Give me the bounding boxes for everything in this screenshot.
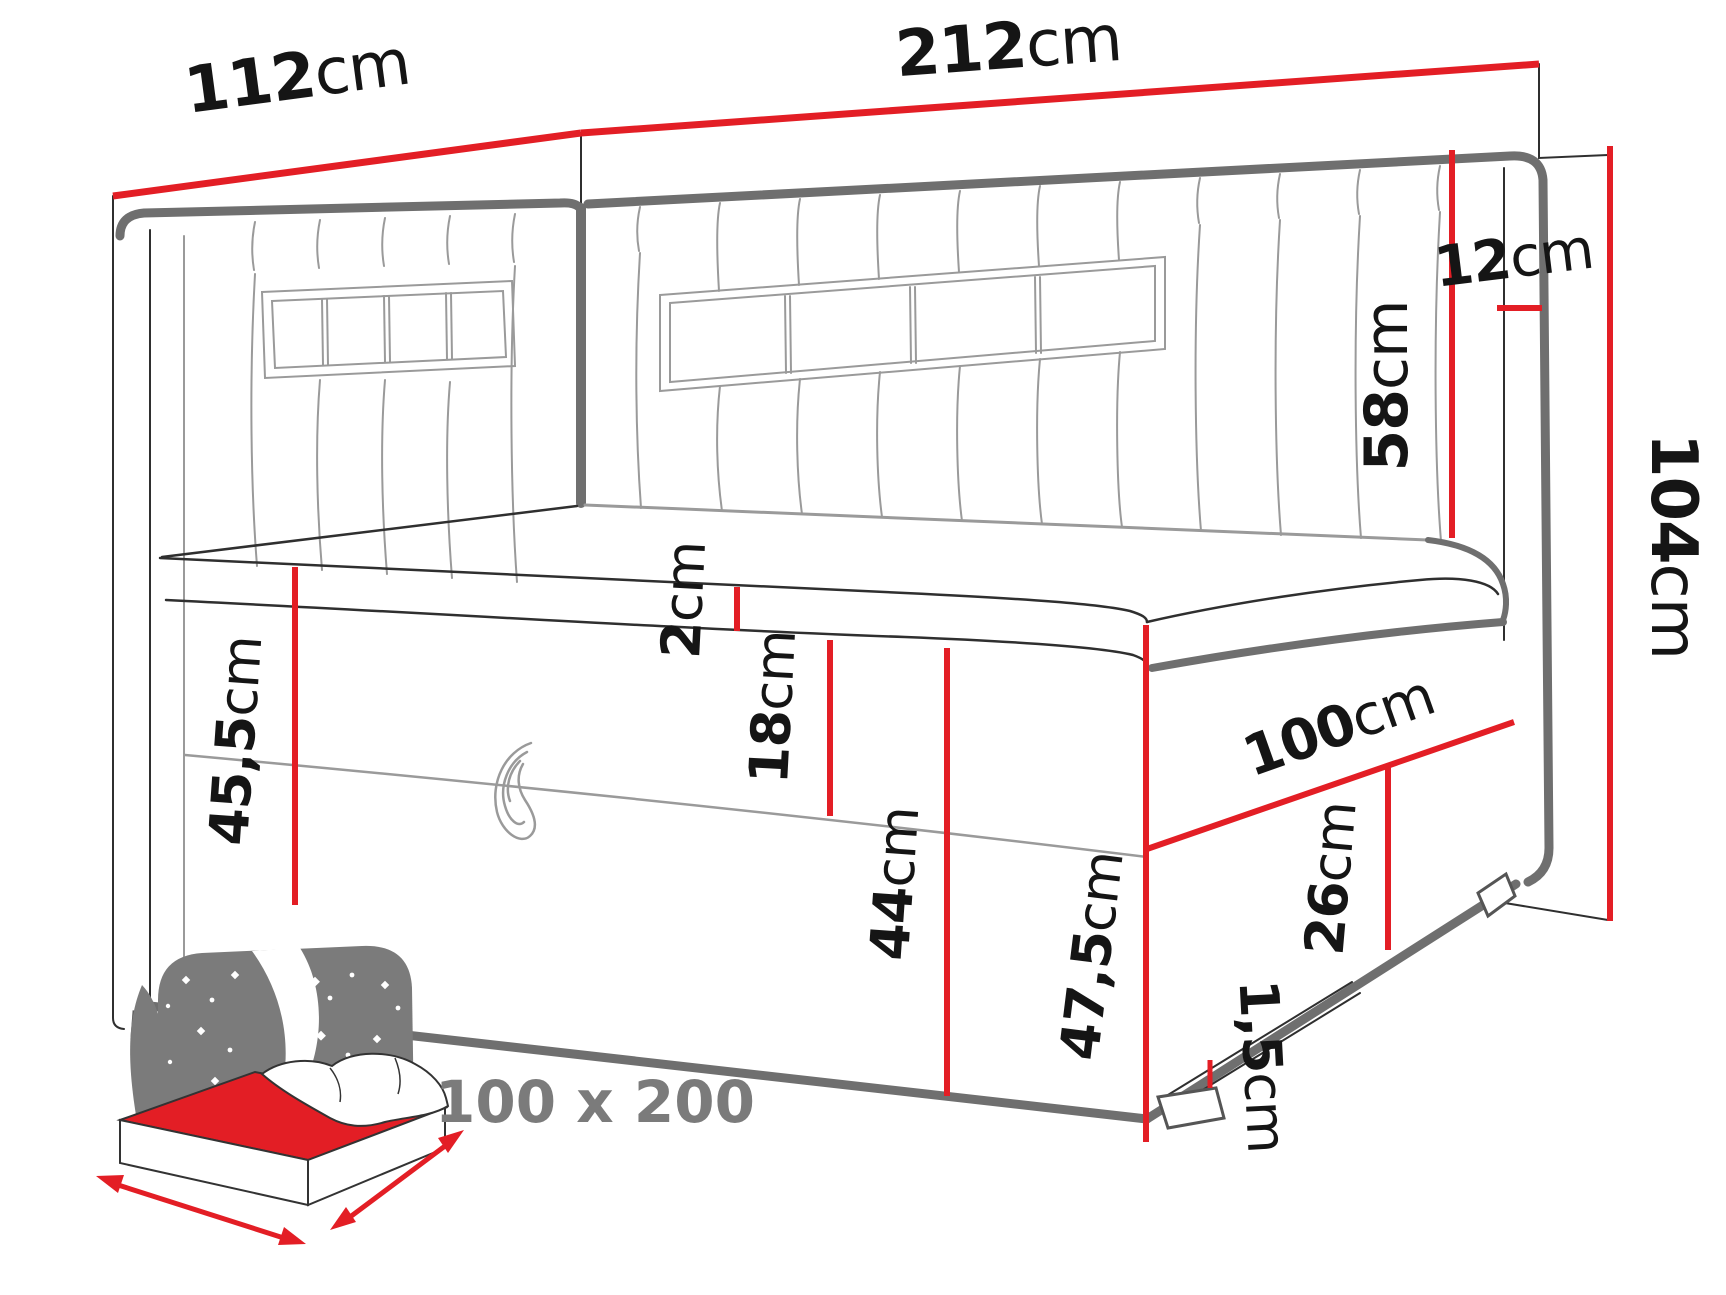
headboard-right-panel	[660, 257, 1165, 391]
icon-length-arrowhead-left	[330, 1207, 356, 1230]
dim-26-label: 26cm	[1293, 799, 1369, 957]
bed-foot-corner	[1158, 1088, 1224, 1128]
dim-212-label: 212cm	[893, 2, 1124, 92]
headboard-right	[581, 156, 1549, 882]
mattress	[160, 505, 1506, 668]
icon-width-arrowhead-right	[278, 1227, 306, 1245]
icon-size-label: 100 x 200	[435, 1068, 755, 1136]
mattress-far-edge	[585, 505, 1428, 540]
drawer-handle	[495, 743, 535, 839]
dim-112-line	[113, 133, 581, 196]
diagram-canvas: 112cm 212cm 58cm 12cm 104cm 2cm 18cm	[0, 0, 1726, 1295]
icon-width-arrowhead-left	[96, 1175, 124, 1193]
dimension-212: 212cm	[581, 2, 1539, 133]
dimension-44: 44cm	[858, 648, 947, 1096]
dimension-104: 104cm	[1610, 146, 1710, 921]
dim-12-label: 12cm	[1431, 217, 1597, 301]
floor-extension-line	[1505, 903, 1608, 920]
dim-45-5-label: 45,5cm	[197, 634, 274, 847]
bed-dimension-diagram: 112cm 212cm 58cm 12cm 104cm 2cm 18cm	[0, 0, 1726, 1295]
dimension-12: 12cm	[1431, 217, 1597, 308]
mattress-pad-edge-right	[1147, 579, 1498, 622]
headboard-left	[120, 203, 579, 1003]
dim-104-label: 104cm	[1636, 433, 1710, 659]
left-extension-line	[113, 196, 124, 1029]
right-extension-line	[1539, 64, 1608, 158]
dimension-112: 112cm	[113, 26, 581, 196]
dim-44-label: 44cm	[858, 805, 932, 962]
dimension-47-5: 47,5cm	[1048, 625, 1146, 1142]
bed-size-icon: 100 x 200	[96, 946, 755, 1245]
mattress-bottom-piping-right	[1152, 622, 1503, 668]
dimension-2: 2cm	[649, 540, 737, 660]
dimension-45-5: 45,5cm	[197, 567, 295, 905]
dim-58-label: 58cm	[1352, 301, 1422, 472]
base-top-seam-front	[185, 755, 1147, 857]
headboard-left-top-edge	[120, 203, 579, 236]
headboard-left-panel	[262, 281, 515, 378]
dim-2-label: 2cm	[649, 540, 718, 660]
dim-1-5-label: 1,5cm	[1226, 978, 1298, 1154]
dim-47-5-label: 47,5cm	[1048, 848, 1136, 1064]
headboard-left-tuft-ticks	[252, 214, 515, 270]
dim-18-label: 18cm	[737, 629, 808, 786]
dim-112-label: 112cm	[180, 26, 414, 129]
dim-100-label: 100cm	[1235, 663, 1443, 790]
dimension-18: 18cm	[737, 629, 830, 816]
